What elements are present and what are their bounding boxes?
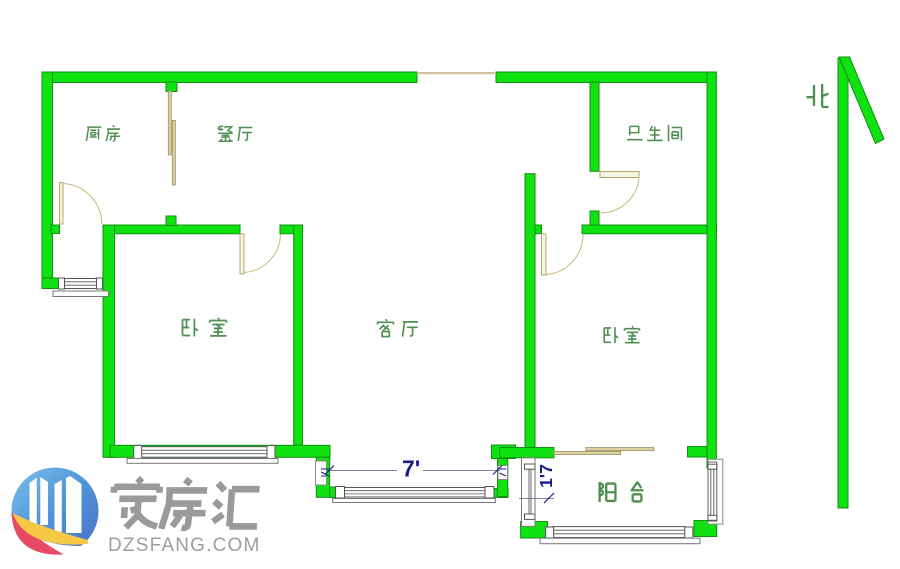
svg-text:DZSFANG.COM: DZSFANG.COM [108, 535, 261, 556]
svg-text:7': 7' [402, 456, 420, 482]
svg-text:1'7: 1'7 [536, 464, 556, 488]
